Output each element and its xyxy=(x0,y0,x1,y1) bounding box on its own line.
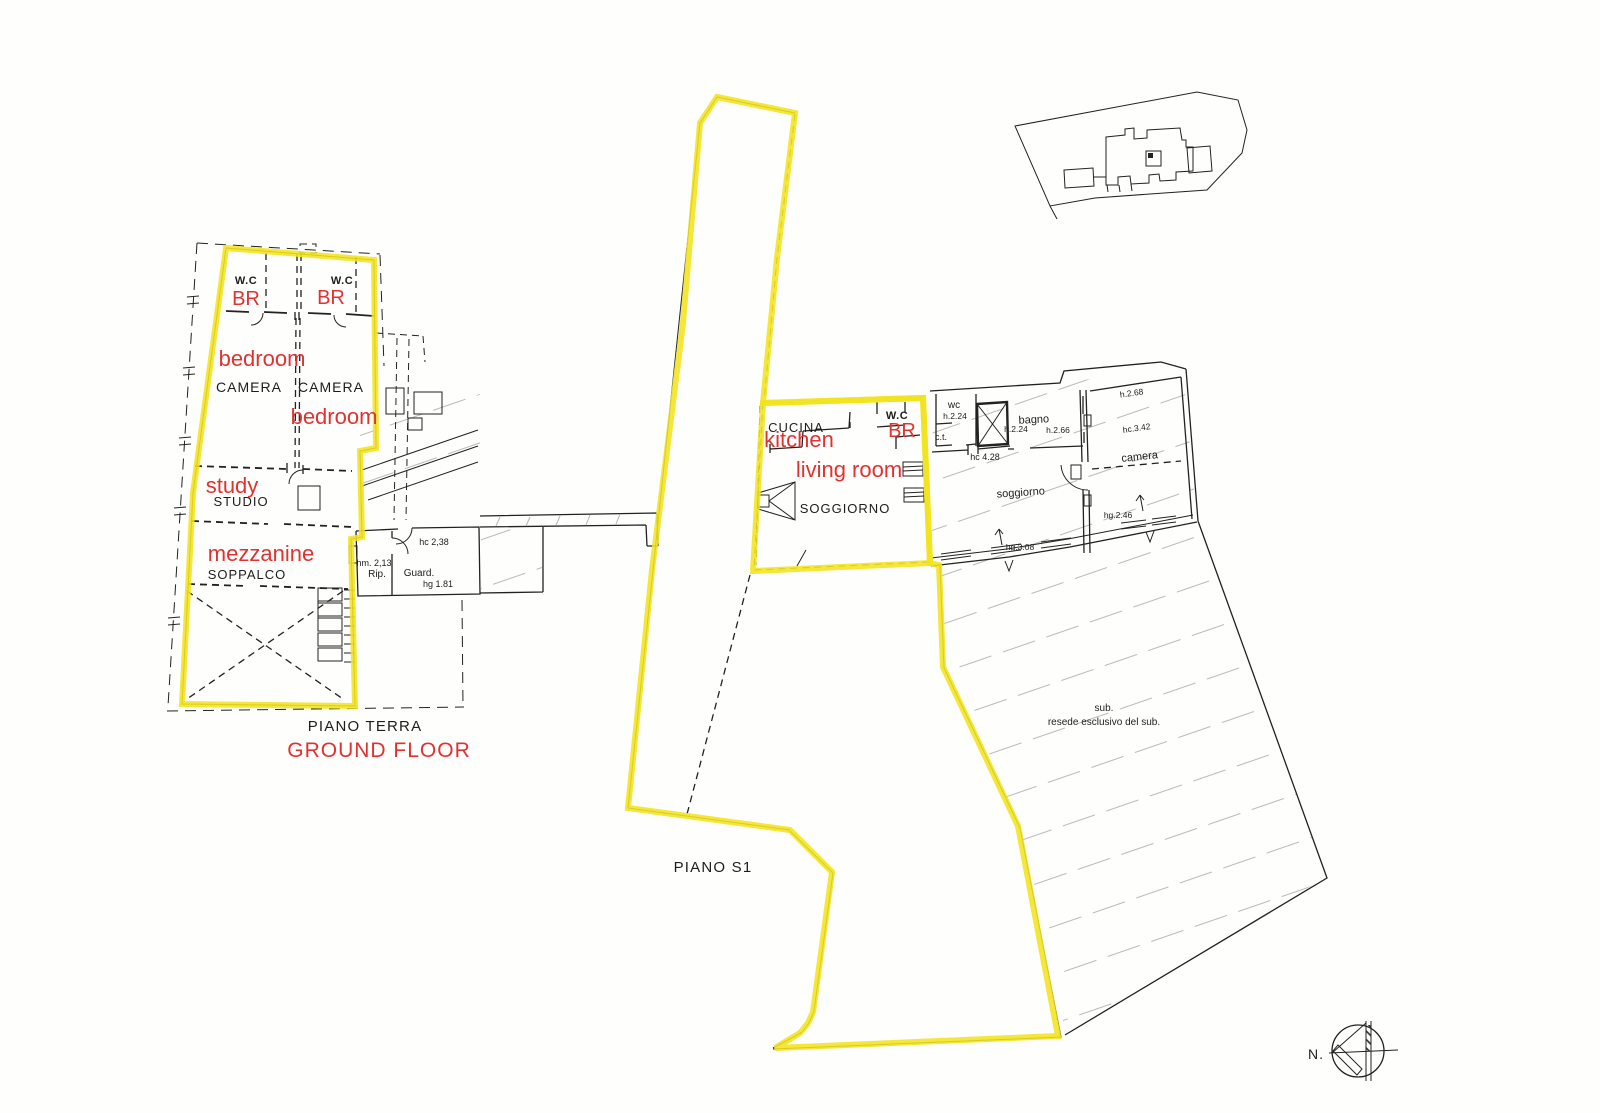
resede-hatch xyxy=(932,370,1326,1034)
label-wc-left: W.C xyxy=(235,275,257,287)
mezzanine-void-cross xyxy=(187,591,343,699)
label-guard: Guard. xyxy=(404,568,435,579)
studio-closet xyxy=(298,486,320,510)
label-north: N. xyxy=(1308,1046,1324,1062)
scanned-floor-plan-page: W.C W.C CAMERA CAMERA STUDIO SOPPALCO hm… xyxy=(0,0,1600,1113)
annotation-study: study xyxy=(206,473,259,498)
label-hg-1-81: hg 1.81 xyxy=(423,579,453,589)
label-wc-right: W.C xyxy=(331,275,353,287)
annotation-bedroom-right: bedroom xyxy=(291,404,378,429)
ground-floor-plan: W.C W.C CAMERA CAMERA STUDIO SOPPALCO hm… xyxy=(167,243,658,762)
ground-floor-adjacent-structures xyxy=(349,333,658,596)
label-hg-2-46: hg.2.46 xyxy=(1104,510,1133,520)
label-soggiorno-unit: SOGGIORNO xyxy=(800,501,891,516)
label-resede: resede esclusivo del sub. xyxy=(1048,717,1160,728)
label-bagno-h: h.2.24 xyxy=(1004,424,1028,434)
label-camera-right: CAMERA xyxy=(298,379,364,395)
label-hc-2-38: hc 2,38 xyxy=(419,537,449,547)
label-camera-left: CAMERA xyxy=(216,379,282,395)
label-hm-2-13: hm. 2,13 xyxy=(356,558,391,568)
label-sub: sub. xyxy=(1095,703,1114,714)
annotation-br-right: BR xyxy=(317,287,345,309)
site-subject-building xyxy=(1187,146,1212,173)
floor-plan-drawing: W.C W.C CAMERA CAMERA STUDIO SOPPALCO hm… xyxy=(0,0,1600,1113)
label-adjacent-wc-h: h.2.24 xyxy=(943,411,967,421)
label-piano-terra: PIANO TERRA xyxy=(308,718,423,735)
label-ct: c.t. xyxy=(935,432,947,442)
label-hg-3-08: hg.3.08 xyxy=(1006,542,1035,552)
label-bagno-h2: h.2.66 xyxy=(1046,425,1070,435)
label-soppalco: SOPPALCO xyxy=(208,567,287,582)
annotation-br-left: BR xyxy=(232,288,260,310)
s1-parcel-divider xyxy=(686,575,750,818)
label-adjacent-wc: wc xyxy=(947,400,960,411)
annotation-mezzanine: mezzanine xyxy=(208,541,314,566)
annotation-living-room: living room xyxy=(796,457,902,482)
annotation-ground-floor: GROUND FLOOR xyxy=(287,739,471,762)
label-piano-s1: PIANO S1 xyxy=(674,859,753,876)
s1-plan: CUCINA W.C SOGGIORNO PIANO S1 wc h.2.24 … xyxy=(628,97,1327,1049)
label-hc-4-28: hc 4.28 xyxy=(970,452,1000,462)
fireplace xyxy=(758,482,795,520)
annotation-kitchen: kitchen xyxy=(764,427,834,452)
site-plan xyxy=(1015,92,1247,219)
label-rip: Rip. xyxy=(368,569,386,580)
north-compass: N. xyxy=(1308,1021,1398,1081)
annotation-bedroom-left: bedroom xyxy=(219,346,306,371)
annotation-br-s1: BR xyxy=(888,420,916,442)
